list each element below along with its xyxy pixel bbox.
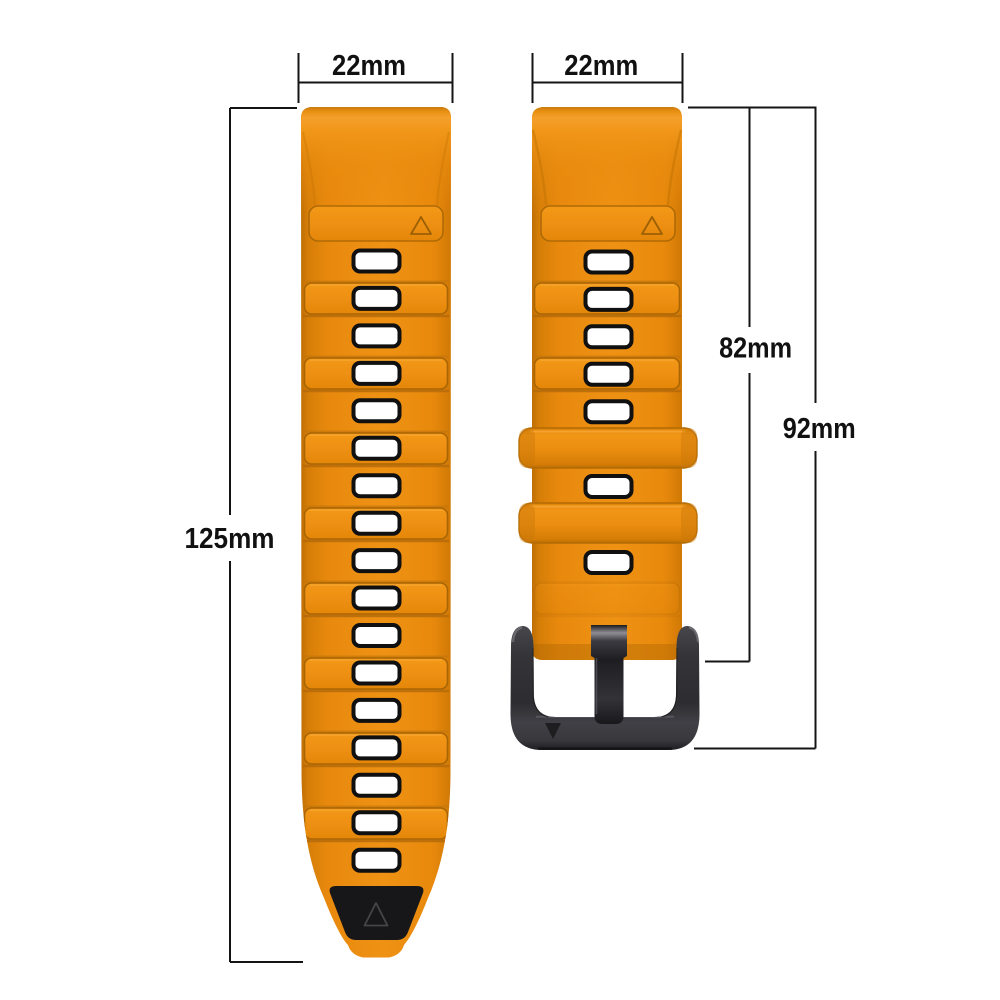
svg-text:22mm: 22mm	[332, 50, 406, 82]
svg-text:22mm: 22mm	[564, 50, 638, 82]
svg-text:125mm: 125mm	[185, 523, 275, 555]
svg-text:92mm: 92mm	[783, 413, 856, 445]
svg-text:82mm: 82mm	[719, 332, 792, 364]
